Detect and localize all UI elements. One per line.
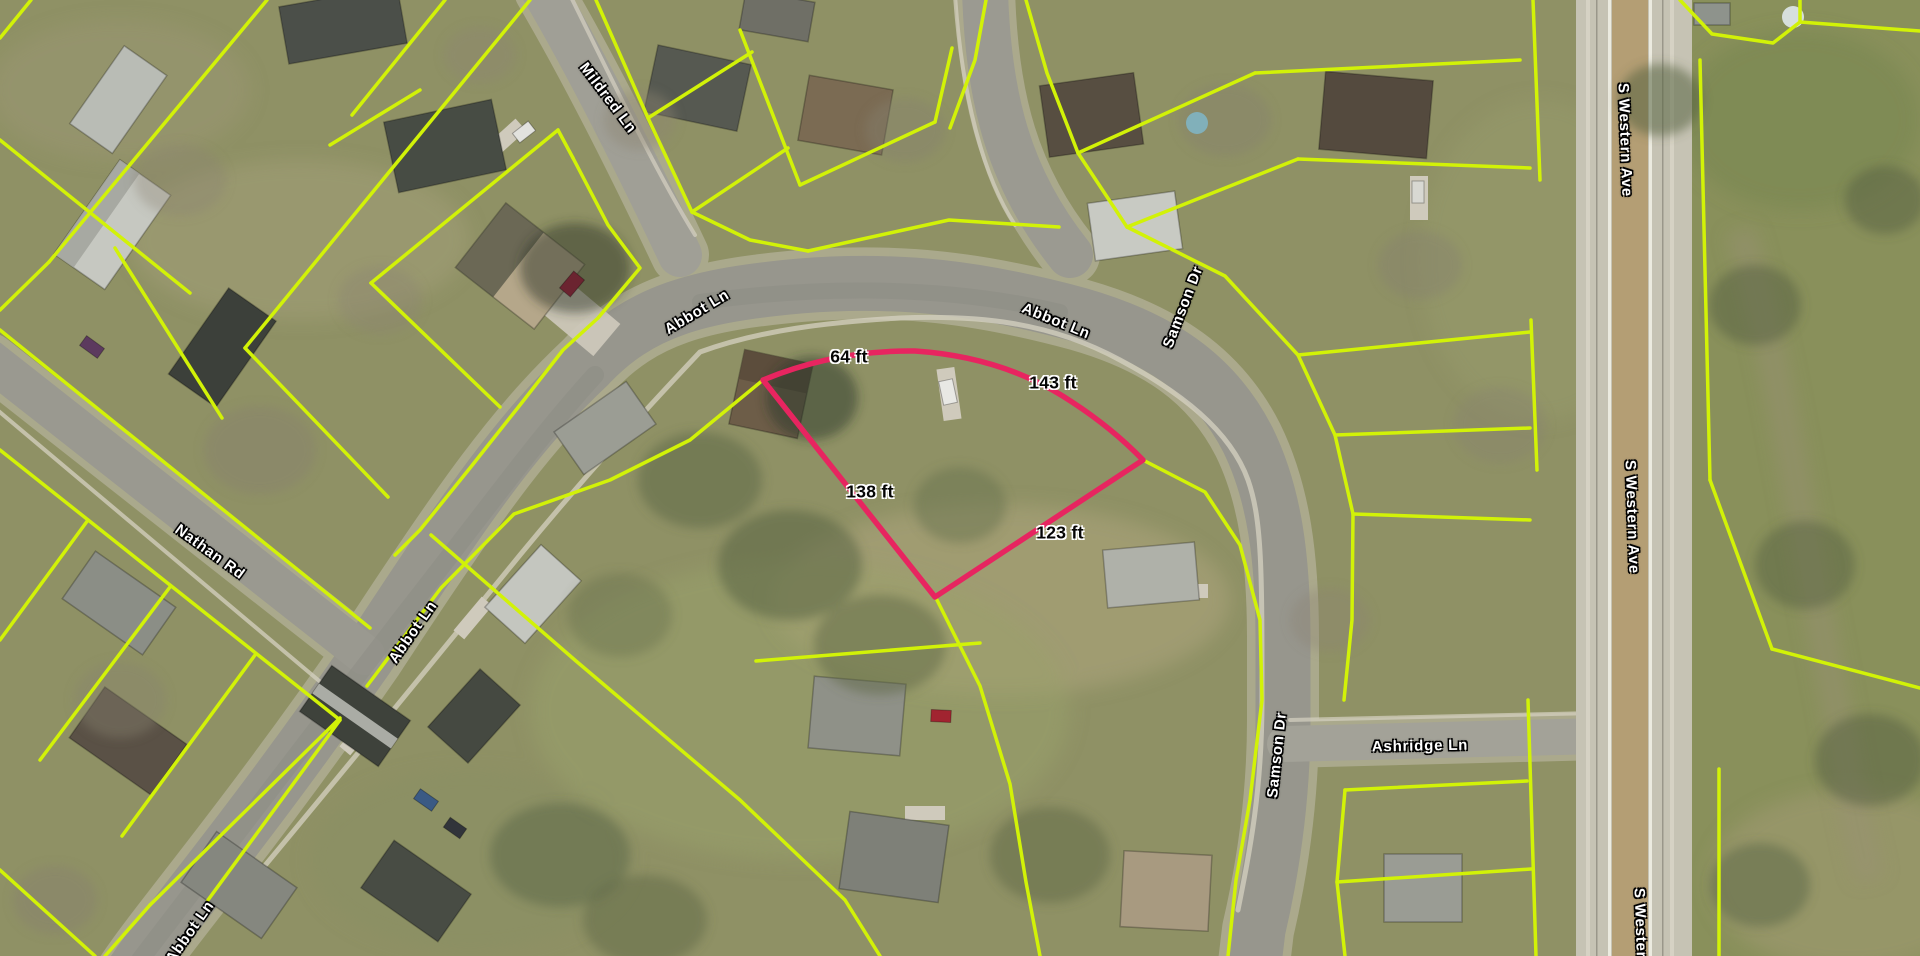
aerial-imagery: [0, 0, 1920, 956]
map-canvas[interactable]: Mildred Ln Abbot Ln Abbot Ln Samson Dr N…: [0, 0, 1920, 956]
highway-s-western: [1576, 0, 1692, 956]
